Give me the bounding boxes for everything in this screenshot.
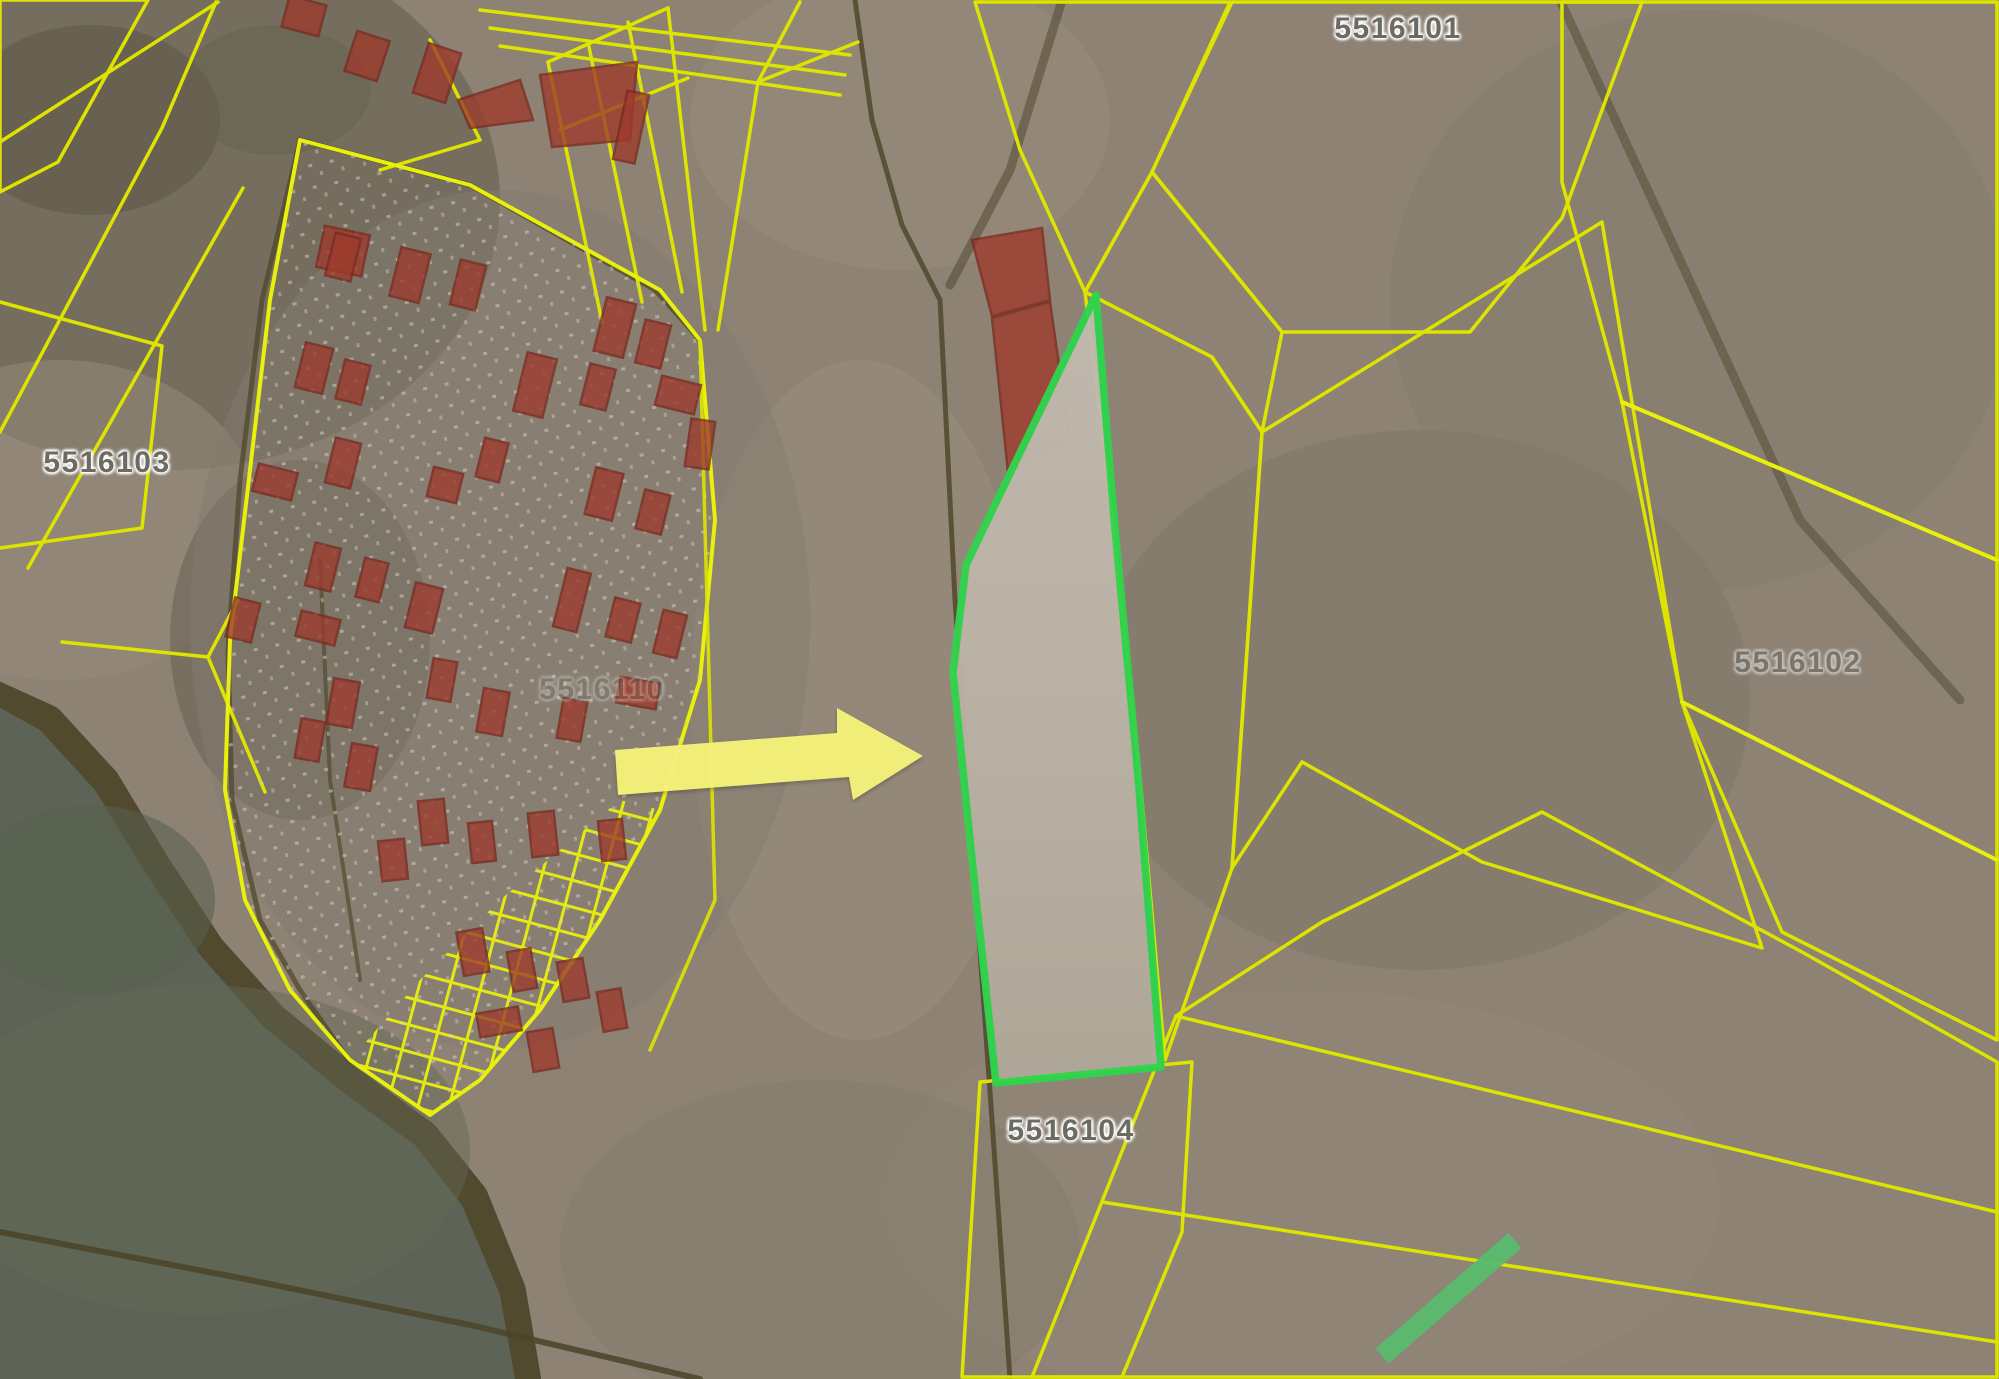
parcel-label-5516110: 5516110	[539, 673, 665, 707]
parcel-label-5516102: 5516102	[1734, 646, 1861, 680]
parcel-label-5516103: 5516103	[43, 446, 170, 480]
parcel-label-5516101: 5516101	[1334, 12, 1461, 46]
satellite-map-canvas[interactable]	[0, 0, 1999, 1379]
parcel-label-5516104: 5516104	[1007, 1114, 1134, 1148]
map-viewport[interactable]: 5516103 5516101 5516104 5516102 5516110	[0, 0, 1999, 1379]
